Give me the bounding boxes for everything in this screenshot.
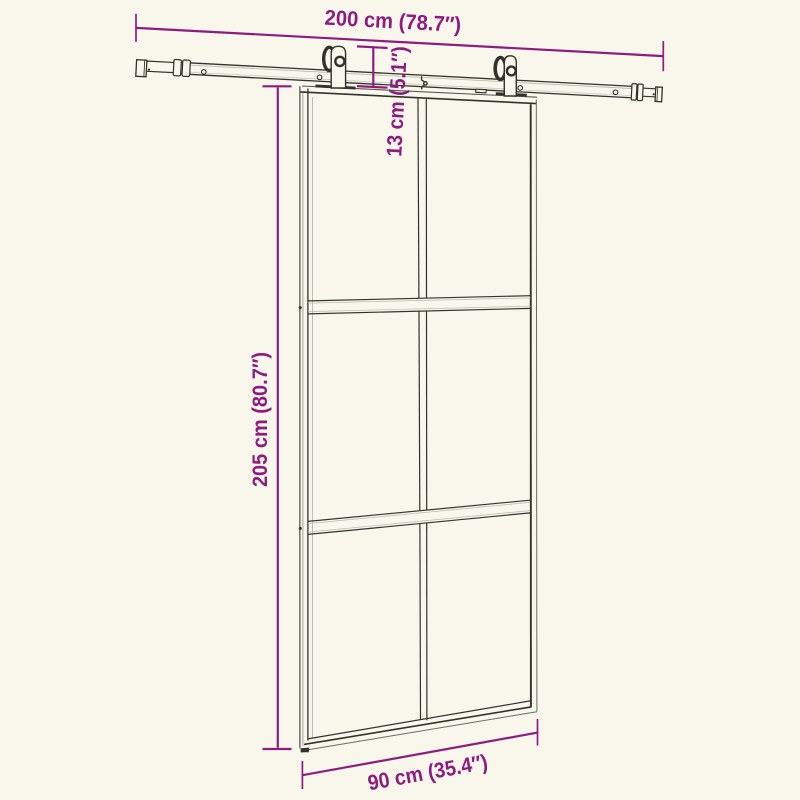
- svg-text:205 cm (80.7″): 205 cm (80.7″): [249, 352, 273, 487]
